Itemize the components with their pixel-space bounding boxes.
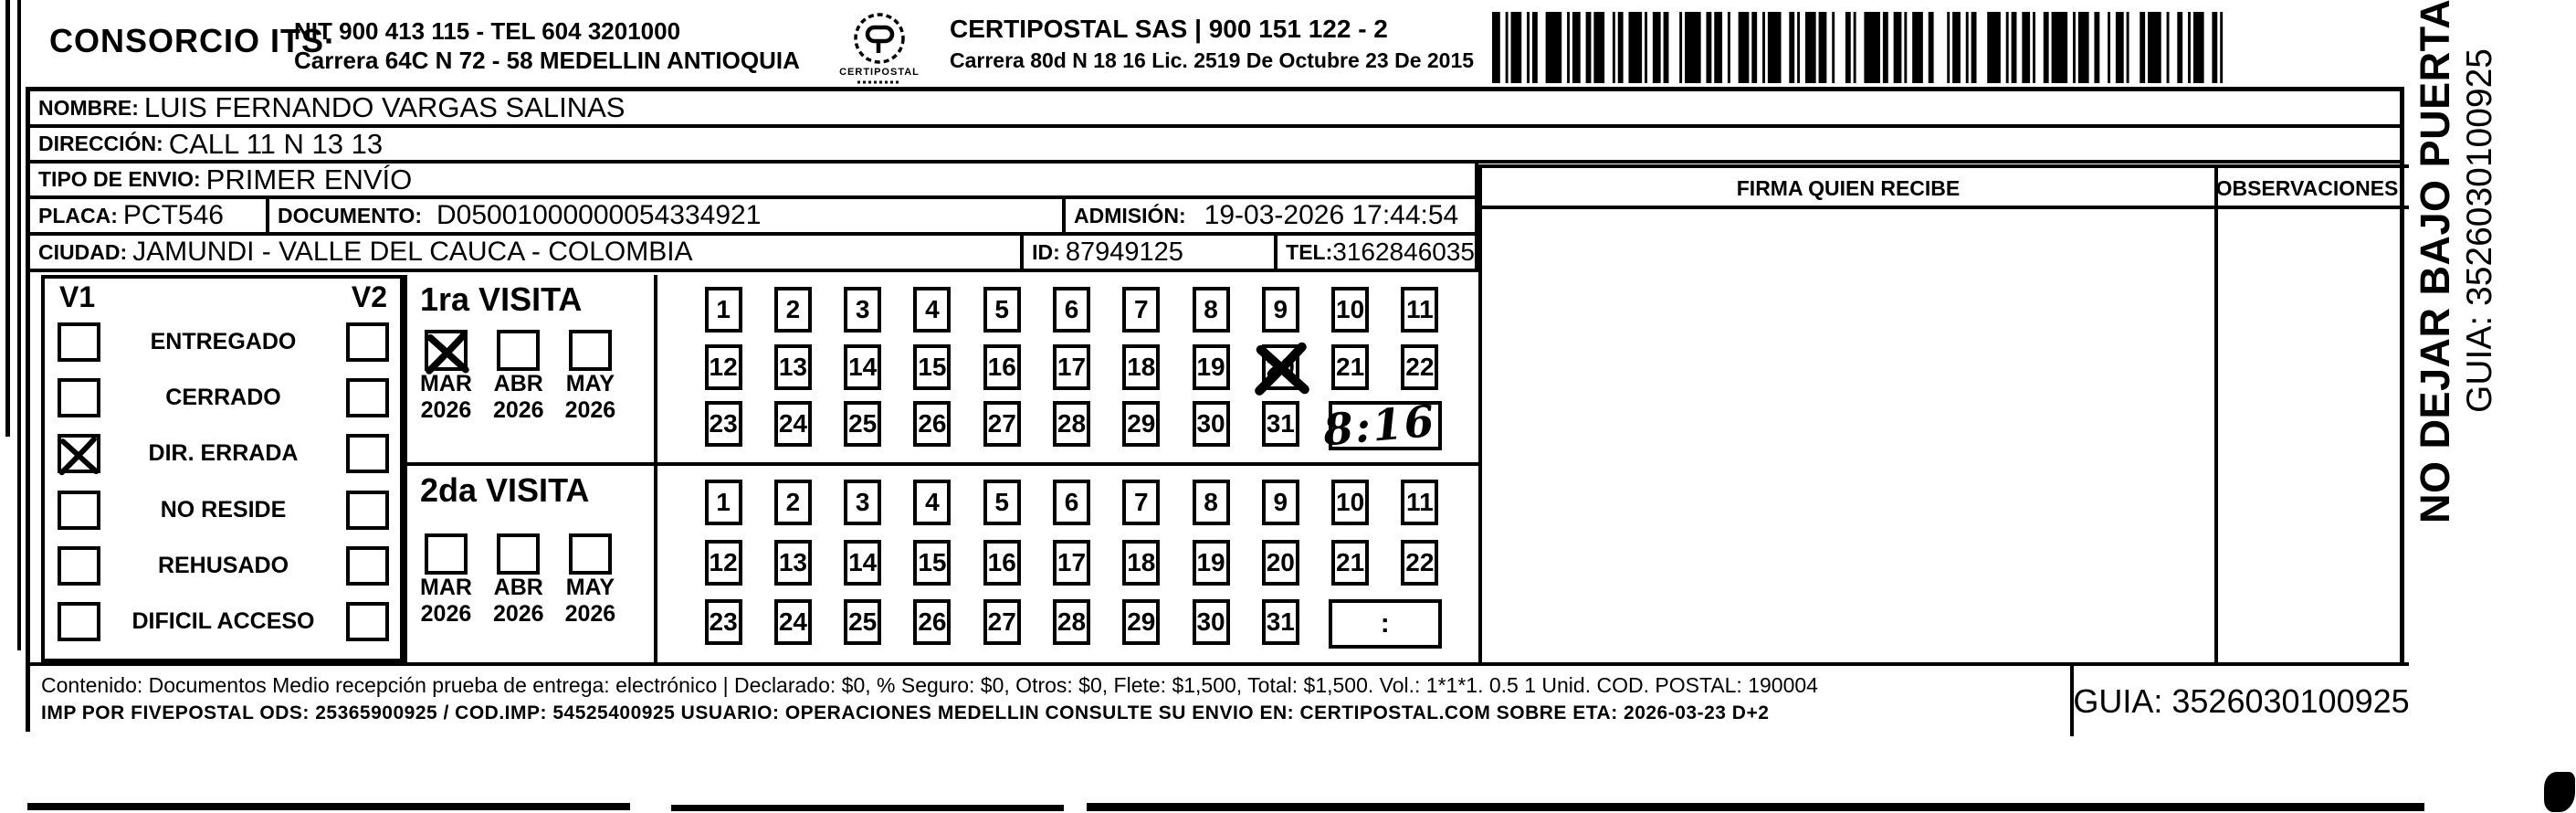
status-row-cerrado: CERRADO: [58, 370, 389, 426]
month-item-abr: ABR2026: [493, 330, 544, 424]
placa-label: PLACA:: [30, 204, 123, 228]
first-visit-panel: 1ra VISITA MAR2026ABR2026MAY2026: [404, 275, 657, 466]
checkbox-v1-cerrado: [58, 378, 100, 417]
status-label-entregado: ENTREGADO: [100, 329, 346, 355]
field-row-nombre: NOMBRE: LUIS FERNANDO VARGAS SALINAS: [30, 91, 2400, 128]
day-box-10: 10: [1331, 480, 1369, 525]
day-box-8: 8: [1193, 287, 1230, 333]
checkbox-v1-entregado: [58, 322, 100, 362]
checkbox-v1-dificil-acceso: [58, 602, 100, 641]
company-name: CONSORCIO ITS·: [49, 22, 336, 60]
day-box-3: 3: [844, 480, 881, 525]
day-box-17: 17: [1053, 540, 1090, 586]
first-visit-day-grid: 1234567891011121314151617181920212223242…: [657, 275, 1478, 466]
second-visit-panel: 2da VISITA MAR2026ABR2026MAY2026: [404, 466, 657, 662]
day-box-22: 22: [1401, 540, 1438, 586]
checkbox-v1-rehusado: [58, 546, 100, 586]
day-box-29: 29: [1122, 599, 1160, 645]
day-box-15: 15: [913, 540, 951, 586]
day-box-30: 30: [1193, 599, 1230, 645]
day-box-5: 5: [983, 287, 1021, 333]
visit-status-panel: V1 V2 ENTREGADOCERRADODIR. ERRADANO RESI…: [41, 275, 404, 662]
nombre-label: NOMBRE:: [30, 96, 144, 121]
day-box-21: 21: [1331, 344, 1369, 390]
direccion-label: DIRECCIÓN:: [30, 132, 169, 156]
scan-artifact-bottom-strip: [1087, 803, 2424, 811]
field-row-tipo-envio: TIPO DE ENVIO: PRIMER ENVÍO: [30, 164, 1478, 199]
day-box-31: 31: [1262, 401, 1299, 447]
status-row-entregado: ENTREGADO: [58, 314, 389, 370]
checkbox-v1-no-reside: [58, 491, 100, 530]
status-row-no-reside: NO RESIDE: [58, 482, 389, 538]
barcode: [1492, 12, 2228, 83]
day-box-12: 12: [705, 344, 742, 390]
handwritten-time: 8:16: [1321, 396, 1438, 456]
id-value: 87949125: [1066, 238, 1183, 268]
tel-value: 3162846035: [1332, 238, 1475, 267]
status-label-no-reside: NO RESIDE: [100, 497, 346, 523]
day-box-29: 29: [1122, 401, 1160, 447]
second-visit-months: MAR2026ABR2026MAY2026: [420, 533, 654, 628]
day-box-4: 4: [913, 287, 951, 333]
month-checkbox-may: [569, 330, 612, 371]
day-box-27: 27: [983, 401, 1021, 447]
status-label-cerrado: CERRADO: [100, 385, 346, 411]
admision-label: ADMISIÓN:: [1066, 204, 1192, 228]
day-box-13: 13: [774, 540, 812, 586]
month-checkbox-abr: [497, 533, 540, 575]
month-item-mar: MAR2026: [420, 533, 472, 628]
handwritten-x-mark: [425, 330, 470, 375]
month-year: 2026: [421, 601, 472, 628]
status-label-dificil-acceso: DIFICIL ACCESO: [100, 608, 346, 635]
delivery-form: NOMBRE: LUIS FERNANDO VARGAS SALINAS DIR…: [26, 87, 2404, 732]
day-box-12: 12: [705, 540, 742, 586]
month-year: 2026: [565, 397, 616, 424]
month-label: MAY: [566, 371, 615, 397]
status-row-rehusado: REHUSADO: [58, 538, 389, 594]
id-cell: ID: 87949125: [1024, 236, 1277, 269]
day-box-10: 10: [1331, 287, 1369, 333]
handwritten-x-mark: [1254, 340, 1310, 396]
tipo-envio-value: PRIMER ENVÍO: [206, 164, 413, 196]
month-label: MAR: [420, 575, 472, 601]
field-row-placa-documento-admision: PLACA: PCT546 DOCUMENTO: D05001000000054…: [30, 199, 1478, 236]
scan-artifact-bottom-strip: [27, 803, 630, 810]
time-colon: :: [1381, 608, 1390, 639]
day-box-7: 7: [1122, 480, 1160, 525]
id-label: ID:: [1024, 240, 1066, 265]
footer-info: Contenido: Documentos Medio recepción pr…: [30, 662, 2409, 736]
month-label: ABR: [494, 575, 543, 601]
certipostal-license-line: Carrera 80d N 18 16 Lic. 2519 De Octubre…: [950, 48, 1474, 73]
month-label: ABR: [494, 371, 543, 397]
scan-artifact-left-line: [17, 0, 21, 650]
placa-cell: PLACA: PCT546: [30, 199, 269, 232]
second-visit-day-grid: 1234567891011121314151617181920212223242…: [657, 466, 1478, 662]
day-box-18: 18: [1122, 540, 1160, 586]
month-item-mar: MAR2026: [420, 330, 472, 424]
scanned-shipping-label: CONSORCIO ITS· NIT 900 413 115 - TEL 604…: [0, 0, 2576, 813]
day-box-17: 17: [1053, 344, 1090, 390]
day-box-3: 3: [844, 287, 881, 333]
month-item-may: MAY2026: [565, 533, 616, 628]
day-box-26: 26: [913, 401, 951, 447]
day-box-25: 25: [844, 401, 881, 447]
company-nit-line: NIT 900 413 115 - TEL 604 3201000: [294, 16, 800, 46]
footer-imp-line: IMP POR FIVEPOSTAL ODS: 25365900925 / CO…: [41, 702, 2055, 724]
day-box-7: 7: [1122, 287, 1160, 333]
footer-contenido-line: Contenido: Documentos Medio recepción pr…: [41, 673, 2055, 698]
day-box-26: 26: [913, 599, 951, 645]
month-label: MAY: [566, 575, 615, 601]
checkbox-v2-dificil-acceso: [346, 602, 389, 641]
month-year: 2026: [565, 601, 616, 628]
documento-value: D05001000000054334921: [436, 200, 761, 231]
checkbox-v2-rehusado: [346, 546, 389, 586]
day-box-23: 23: [705, 599, 742, 645]
admision-cell: ADMISIÓN: 19-03-2026 17:44:54: [1066, 200, 1475, 231]
direccion-value: CALL 11 N 13 13: [169, 128, 383, 161]
day-box-31: 31: [1262, 599, 1299, 645]
day-box-4: 4: [913, 480, 951, 525]
documento-cell: DOCUMENTO: D05001000000054334921: [269, 199, 1066, 232]
day-box-6: 6: [1053, 287, 1090, 333]
checkbox-v2-entregado: [346, 322, 389, 362]
day-box-2: 2: [774, 480, 812, 525]
month-year: 2026: [493, 601, 544, 628]
day-box-28: 28: [1053, 401, 1090, 447]
ciudad-cell: CIUDAD: JAMUNDI - VALLE DEL CAUCA - COLO…: [30, 236, 1024, 269]
guia-number: GUIA: 3526030100925: [2070, 662, 2409, 736]
day-box-8: 8: [1193, 480, 1230, 525]
month-checkbox-abr: [497, 330, 540, 371]
day-box-23: 23: [705, 401, 742, 447]
second-visit-title: 2da VISITA: [420, 471, 654, 510]
status-label-dir-errada: DIR. ERRADA: [100, 440, 346, 467]
side-warning: NO DEJAR BAJO PUERTA: [2412, 0, 2459, 523]
time-box: :: [1329, 599, 1442, 649]
company-address-line: Carrera 64C N 72 - 58 MEDELLIN ANTIOQUIA: [294, 46, 800, 75]
day-box-28: 28: [1053, 599, 1090, 645]
month-item-abr: ABR2026: [493, 533, 544, 628]
observaciones-area: [2218, 209, 2400, 659]
observaciones-header: OBSERVACIONES: [2214, 168, 2400, 209]
month-year: 2026: [421, 397, 472, 424]
day-box-20: 20: [1262, 540, 1299, 586]
day-box-19: 19: [1193, 344, 1230, 390]
day-box-15: 15: [913, 344, 951, 390]
firma-header: FIRMA QUIEN RECIBE: [1482, 168, 2214, 209]
day-box-9: 9: [1262, 287, 1299, 333]
day-box-22: 22: [1401, 344, 1438, 390]
status-row-dificil-acceso: DIFICIL ACCESO: [58, 594, 389, 649]
day-box-14: 14: [844, 540, 881, 586]
checkbox-v1-dir-errada: [58, 434, 100, 473]
admision-value: 19-03-2026 17:44:54: [1204, 200, 1459, 231]
day-box-27: 27: [983, 599, 1021, 645]
checkbox-v2-dir-errada: [346, 434, 389, 473]
day-box-2: 2: [774, 287, 812, 333]
side-guia: GUIA: 3526030100925: [2460, 48, 2500, 413]
tel-cell: TEL: 3162846035: [1277, 238, 1475, 267]
v2-column-header: V2: [352, 280, 387, 314]
day-box-30: 30: [1193, 401, 1230, 447]
scan-artifact-left-line: [5, 0, 10, 437]
nombre-value: LUIS FERNANDO VARGAS SALINAS: [144, 91, 626, 124]
month-label: MAR: [420, 371, 472, 397]
day-box-14: 14: [844, 344, 881, 390]
ciudad-value: JAMUNDI - VALLE DEL CAUCA - COLOMBIA: [132, 237, 692, 268]
certipostal-logo-icon: CERTIPOSTAL: [836, 7, 923, 91]
placa-value: PCT546: [123, 200, 224, 231]
day-box-13: 13: [774, 344, 812, 390]
month-checkbox-mar: [425, 330, 468, 371]
v1-column-header: V1: [59, 280, 95, 314]
scan-artifact-bottom-strip: [671, 805, 1064, 811]
company-contact-block: NIT 900 413 115 - TEL 604 3201000 Carrer…: [294, 16, 800, 75]
day-box-18: 18: [1122, 344, 1160, 390]
day-box-25: 25: [844, 599, 881, 645]
month-item-may: MAY2026: [565, 330, 616, 424]
day-box-20: 20: [1262, 344, 1299, 390]
month-checkbox-may: [569, 533, 612, 575]
certipostal-contact-block: CERTIPOSTAL SAS | 900 151 122 - 2 Carrer…: [950, 15, 1474, 73]
handwritten-x-mark: [58, 434, 100, 477]
tipo-envio-label: TIPO DE ENVIO:: [30, 167, 206, 192]
month-year: 2026: [493, 397, 544, 424]
day-box-24: 24: [774, 401, 812, 447]
day-box-24: 24: [774, 599, 812, 645]
checkbox-v2-no-reside: [346, 491, 389, 530]
status-label-rehusado: REHUSADO: [100, 553, 346, 579]
day-box-16: 16: [983, 344, 1021, 390]
day-box-16: 16: [983, 540, 1021, 586]
day-box-1: 1: [705, 480, 742, 525]
day-box-5: 5: [983, 480, 1021, 525]
scan-artifact-corner-blob: [2544, 772, 2575, 812]
status-header-row: V1 V2: [58, 280, 389, 314]
ciudad-label: CIUDAD:: [30, 240, 132, 265]
checkbox-v2-cerrado: [346, 378, 389, 417]
day-box-11: 11: [1401, 480, 1438, 525]
day-box-21: 21: [1331, 540, 1369, 586]
day-box-6: 6: [1053, 480, 1090, 525]
month-checkbox-mar: [425, 533, 468, 575]
field-row-ciudad-id-tel: CIUDAD: JAMUNDI - VALLE DEL CAUCA - COLO…: [30, 236, 1478, 272]
time-box: 8:16: [1329, 401, 1442, 450]
first-visit-months: MAR2026ABR2026MAY2026: [420, 330, 654, 424]
day-box-19: 19: [1193, 540, 1230, 586]
status-row-dir-errada: DIR. ERRADA: [58, 426, 389, 481]
first-visit-title: 1ra VISITA: [420, 280, 654, 319]
day-box-11: 11: [1401, 287, 1438, 333]
field-row-direccion: DIRECCIÓN: CALL 11 N 13 13: [30, 128, 2400, 164]
certipostal-name-line: CERTIPOSTAL SAS | 900 151 122 - 2: [950, 15, 1474, 44]
signature-area: [1482, 209, 2211, 659]
day-box-9: 9: [1262, 480, 1299, 525]
tel-label: TEL:: [1277, 240, 1332, 265]
documento-label: DOCUMENTO:: [269, 204, 427, 228]
logo-wordmark: CERTIPOSTAL: [839, 67, 920, 78]
day-box-1: 1: [705, 287, 742, 333]
